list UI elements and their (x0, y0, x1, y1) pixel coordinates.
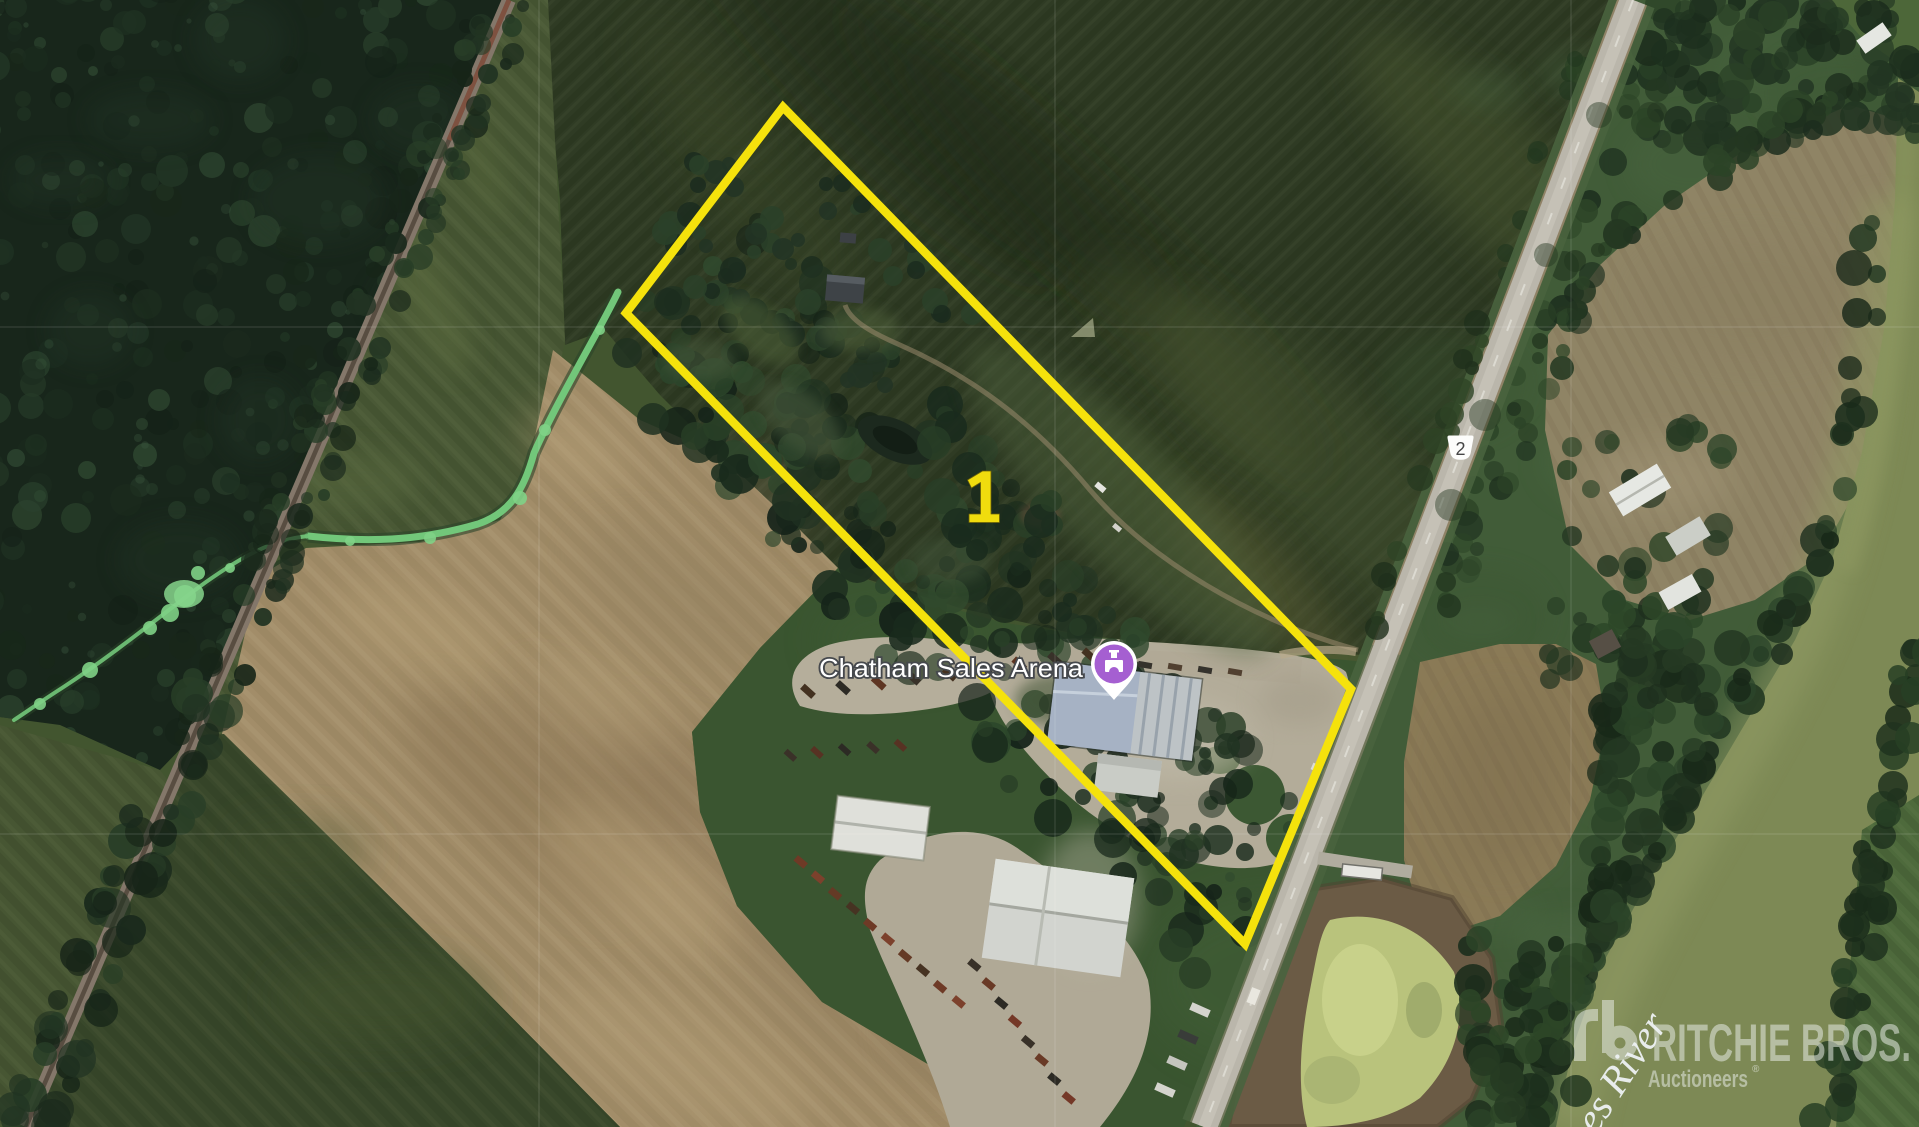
svg-text:Auctioneers: Auctioneers (1648, 1066, 1748, 1093)
svg-text:Chatham Sales Arena: Chatham Sales Arena (819, 653, 1084, 683)
svg-text:2: 2 (1455, 439, 1465, 459)
svg-text:®: ® (1752, 1064, 1760, 1075)
svg-text:RITCHIE BROS.: RITCHIE BROS. (1652, 1014, 1911, 1073)
